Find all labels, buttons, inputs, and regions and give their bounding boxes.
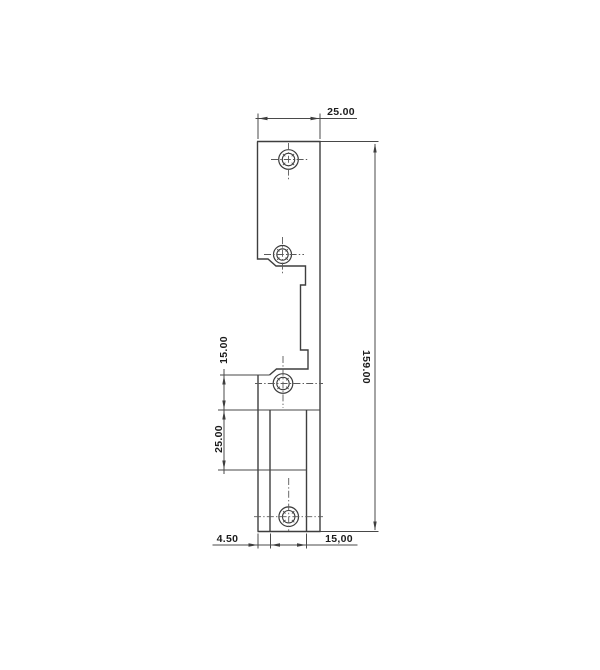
strike-plate-technical-drawing: 25.00 159.00 15.00 25.00 4.50 15,00: [0, 0, 600, 670]
arrowhead-down: [222, 461, 225, 470]
plate-outline: [220, 142, 379, 532]
arrowhead-up: [222, 411, 225, 420]
dim-label-latch-offset: 15.00: [218, 336, 230, 364]
plate-left-profile-upper: [258, 142, 309, 376]
arrowhead-up: [373, 144, 376, 153]
arrowhead-down: [373, 522, 376, 531]
screw-hole-bottom: [254, 478, 323, 531]
arrowhead-right-inside: [297, 543, 306, 546]
latch-hole: [255, 356, 323, 408]
dim-label-bottom-width: 15,00: [325, 533, 353, 545]
arrowhead-left-inside: [271, 543, 280, 546]
arrowhead-right: [311, 117, 320, 120]
dim-label-bottom-left-offset: 4.50: [217, 533, 239, 545]
dimension-overall-height: 159.00: [360, 144, 377, 531]
dimension-keeper-height: 25.00: [213, 411, 226, 470]
dim-label-keeper-height: 25.00: [213, 425, 225, 453]
dim-label-overall-height: 159.00: [360, 350, 372, 384]
arrowhead-down: [222, 401, 225, 410]
arrowhead-right-outside: [249, 543, 258, 546]
arrowhead-left: [259, 117, 268, 120]
dimension-top-width: 25.00: [256, 106, 358, 139]
screw-hole-upper-middle: [264, 237, 304, 274]
screw-hole-top: [271, 143, 308, 180]
dimension-bottom: 4.50 15,00: [213, 533, 358, 549]
keeper-body: [218, 410, 320, 532]
arrowhead-up: [222, 376, 225, 385]
dim-label-top-width: 25.00: [327, 106, 355, 118]
drawing-page: 25.00 159.00 15.00 25.00 4.50 15,00: [0, 0, 600, 670]
